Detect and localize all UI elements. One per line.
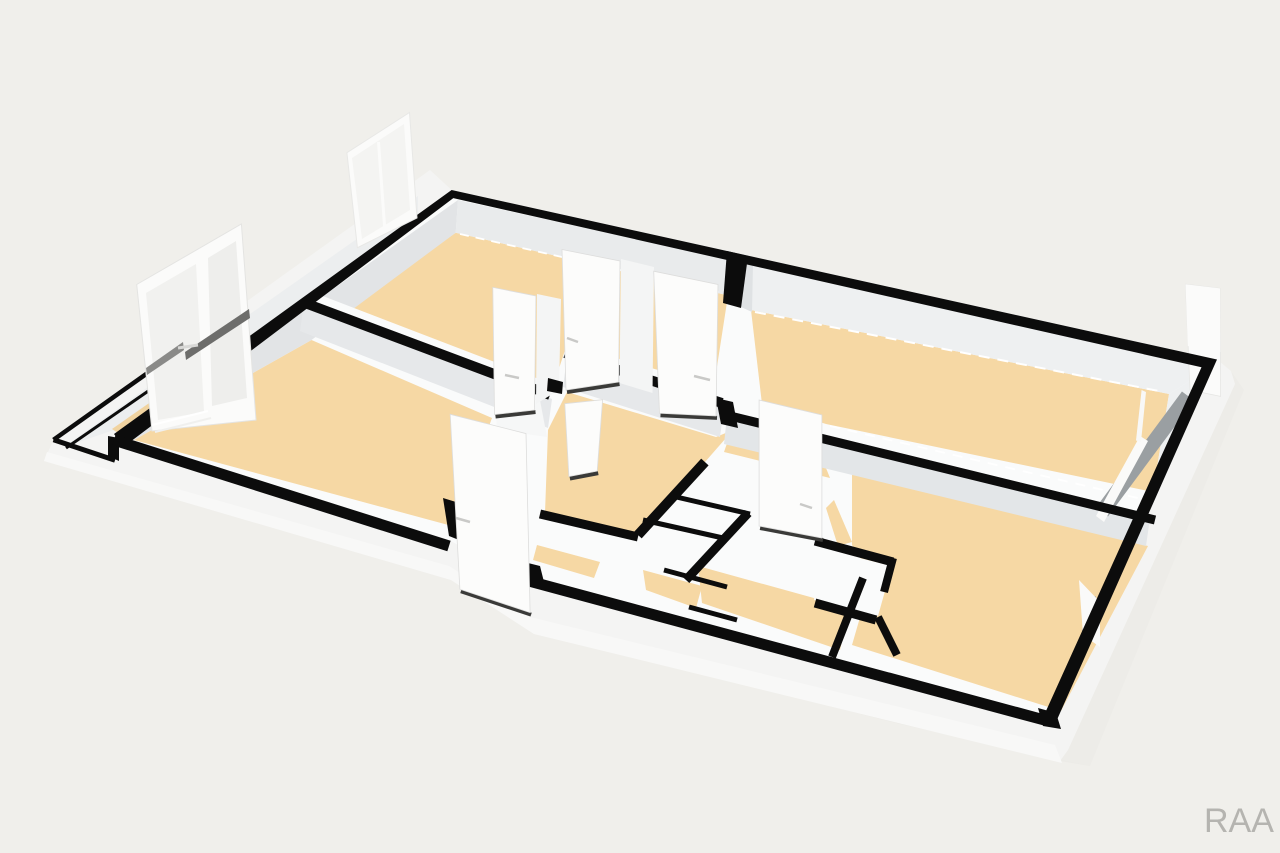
svg-text:RAA: RAA (1204, 802, 1274, 840)
